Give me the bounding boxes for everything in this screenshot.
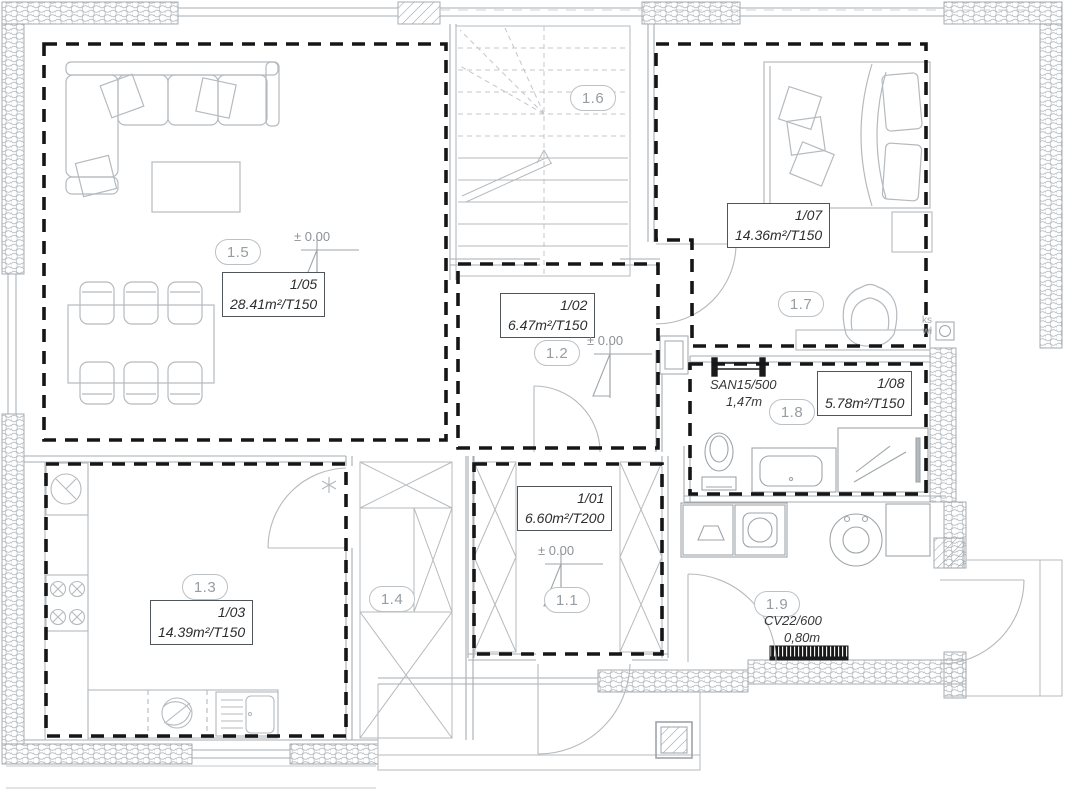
radiator-cv bbox=[770, 646, 848, 660]
towel-radiator-label: SAN15/500 bbox=[710, 377, 777, 392]
stove bbox=[46, 575, 88, 631]
room-label-1-01: 1/01 6.60m²/T200 bbox=[517, 486, 612, 531]
room-tag: 1/07 bbox=[735, 206, 822, 226]
room-label-1-03: 1/03 14.39m²/T150 bbox=[150, 600, 253, 645]
dining-set bbox=[68, 282, 214, 404]
room-area: 14.39m²/T150 bbox=[158, 623, 245, 643]
washbasin bbox=[752, 448, 836, 492]
room-area: 5.78m²/T150 bbox=[825, 394, 904, 414]
snowflake-symbol bbox=[322, 477, 336, 493]
floor-plan: 1.5 1.6 1.7 1.2 1.8 1.1 1.3 1.4 1.9 1/05… bbox=[0, 0, 1078, 800]
towel-radiator bbox=[712, 358, 765, 376]
washing-machine bbox=[683, 505, 733, 555]
boiler bbox=[830, 504, 930, 566]
room-label-1-07: 1/07 14.36m²/T150 bbox=[727, 203, 830, 248]
room-area: 28.41m²/T150 bbox=[230, 295, 317, 315]
room-bubble-1-6: 1.6 bbox=[570, 85, 616, 111]
room-area: 14.36m²/T150 bbox=[735, 226, 822, 246]
room-bubble-1-1: 1.1 bbox=[544, 587, 590, 613]
desk-chair bbox=[843, 285, 897, 347]
bed bbox=[764, 62, 930, 208]
room-area: 6.47m²/T150 bbox=[508, 316, 587, 336]
elevation-label: ± 0.00 bbox=[294, 229, 330, 244]
room-label-1-08: 1/08 5.78m²/T150 bbox=[817, 371, 912, 416]
elevation-label: ± 0.00 bbox=[587, 333, 623, 348]
room-area: 6.60m²/T200 bbox=[525, 509, 604, 529]
floorplan-linework bbox=[0, 0, 1078, 800]
room-tag: 1/02 bbox=[508, 296, 587, 316]
shaft-label-wl: wł bbox=[904, 327, 932, 338]
coffee-table bbox=[152, 162, 240, 212]
towel-radiator-length: 1,47m bbox=[726, 394, 762, 409]
elevation-label: ± 0.00 bbox=[538, 543, 574, 558]
room-tag: 1/05 bbox=[230, 275, 317, 295]
room-bubble-1-3: 1.3 bbox=[182, 574, 228, 600]
fridge bbox=[46, 463, 88, 515]
room-bubble-1-7: 1.7 bbox=[778, 291, 824, 317]
room-bubble-1-4: 1.4 bbox=[369, 586, 415, 612]
room-label-1-02: 1/02 6.47m²/T150 bbox=[500, 293, 595, 338]
kitchen-sink bbox=[216, 692, 278, 736]
toilet bbox=[702, 433, 736, 490]
staircase bbox=[456, 26, 630, 276]
room-tag: 1/01 bbox=[525, 489, 604, 509]
laundry-counter bbox=[681, 503, 787, 557]
room-tag: 1/03 bbox=[158, 603, 245, 623]
shower bbox=[838, 428, 928, 492]
vent-shaft bbox=[936, 322, 954, 340]
radiator-label: CV22/600 bbox=[764, 613, 822, 628]
terrace-left bbox=[6, 766, 376, 788]
plant bbox=[162, 698, 192, 728]
room-bubble-1-5: 1.5 bbox=[215, 239, 261, 265]
room-tag: 1/08 bbox=[825, 374, 904, 394]
dryer bbox=[735, 505, 785, 555]
room-bubble-1-2: 1.2 bbox=[534, 340, 580, 366]
room-bubble-1-8: 1.8 bbox=[769, 399, 815, 425]
room-label-1-05: 1/05 28.41m²/T150 bbox=[222, 272, 325, 317]
corner-sofa bbox=[66, 62, 279, 197]
duct bbox=[660, 336, 688, 374]
radiator-length: 0,80m bbox=[784, 630, 820, 645]
entrance-porch bbox=[378, 684, 700, 770]
